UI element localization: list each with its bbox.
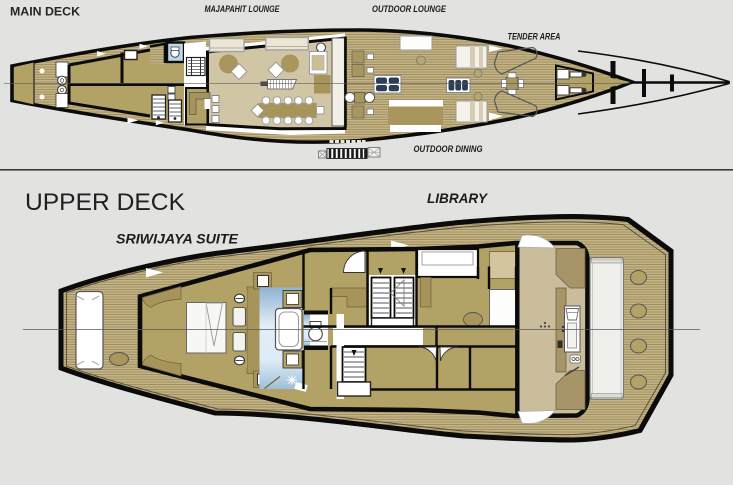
svg-text:SRIWIJAYA SUITE: SRIWIJAYA SUITE [116,232,239,247]
svg-text:LIBRARY: LIBRARY [427,190,489,206]
svg-text:MAIN DECK: MAIN DECK [10,5,80,19]
svg-text:OUTDOOR DINING: OUTDOOR DINING [414,144,483,155]
svg-text:TENDER AREA: TENDER AREA [508,32,561,42]
svg-text:MAJAPAHIT LOUNGE: MAJAPAHIT LOUNGE [205,4,281,14]
svg-text:UPPER DECK: UPPER DECK [25,189,185,216]
svg-text:OUTDOOR LOUNGE: OUTDOOR LOUNGE [372,4,447,14]
